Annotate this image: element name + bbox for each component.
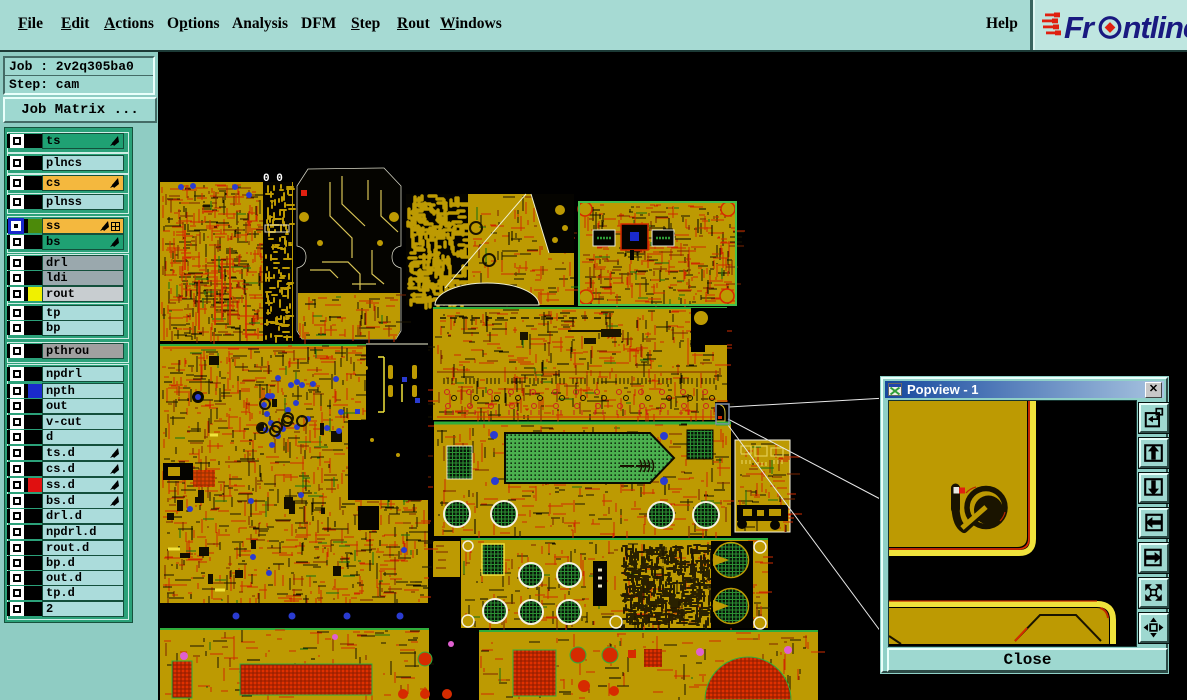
svg-text:0 0: 0 0	[263, 173, 283, 185]
svg-text:Fr: Fr	[1064, 10, 1096, 45]
svg-text:ntline: ntline	[1123, 10, 1187, 45]
